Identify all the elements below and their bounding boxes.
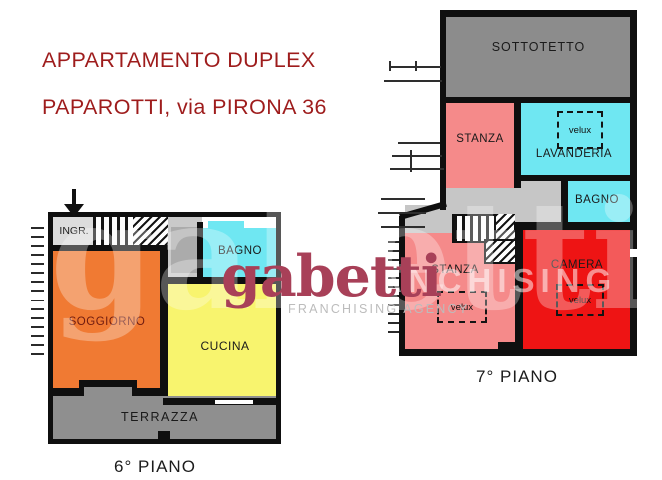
- room-sottotetto: [446, 17, 630, 97]
- room-ingresso-label: INGR.: [54, 225, 94, 237]
- room-bagno-upper-label: BAGNO: [564, 194, 630, 206]
- wall-segment: [521, 175, 630, 181]
- page-title-line2: PAPAROTTI, via PIRONA 36: [42, 95, 327, 120]
- stairs-lower-floor-diagonal: [133, 217, 168, 248]
- stairs-upper-floor-diagonal: [496, 214, 515, 239]
- entrance-arrow-head-icon: [64, 204, 84, 217]
- wall-segment: [498, 342, 515, 350]
- dimension-lines: [31, 300, 44, 355]
- room-stanza-top: [446, 103, 514, 188]
- upper-floor-name: 7° PIANO: [462, 367, 572, 387]
- room-soggiorno-label: SOGGIORNO: [57, 316, 157, 328]
- stairs-lower-floor: [93, 217, 135, 248]
- room-sottotetto-label: SOTTOTETTO: [466, 40, 611, 54]
- floor-plan-image: APPARTAMENTO DUPLEX PAPAROTTI, via PIRON…: [0, 0, 662, 480]
- room-cucina-label: CUCINA: [185, 339, 265, 353]
- room-stanza-top-label: STANZA: [446, 133, 514, 145]
- room-lavanderia-label: LAVANDERIA: [514, 148, 634, 160]
- wall-segment: [515, 230, 523, 350]
- velux-lavanderia: velux: [557, 111, 603, 149]
- window-camera: [630, 249, 637, 257]
- gabetti-tagline: FRANCHISING AGENCY: [288, 302, 469, 316]
- velux-camera: velux: [556, 284, 604, 316]
- stairs-upper-floor-diagonal: [484, 239, 519, 264]
- room-terrazza-label: TERRAZZA: [95, 410, 225, 424]
- lower-floor-name: 6° PIANO: [100, 457, 210, 477]
- wall-segment: [440, 10, 637, 17]
- page-title-line1: APPARTAMENTO DUPLEX: [42, 48, 316, 73]
- wall-segment: [446, 97, 630, 103]
- wall-segment: [514, 222, 637, 230]
- wall-segment: [514, 103, 521, 188]
- corridor: [521, 181, 561, 222]
- wall-segment: [160, 251, 168, 404]
- room-camera-label: CAMERA: [527, 259, 627, 271]
- wall-segment: [158, 431, 170, 440]
- landing-inner: [171, 227, 199, 273]
- window-cucina: [215, 399, 253, 405]
- gabetti-logo: gabetti: [221, 243, 441, 310]
- dimension-lines: [31, 222, 44, 292]
- wall-segment: [630, 10, 637, 356]
- wall-segment: [440, 10, 446, 210]
- wall-segment: [399, 349, 637, 356]
